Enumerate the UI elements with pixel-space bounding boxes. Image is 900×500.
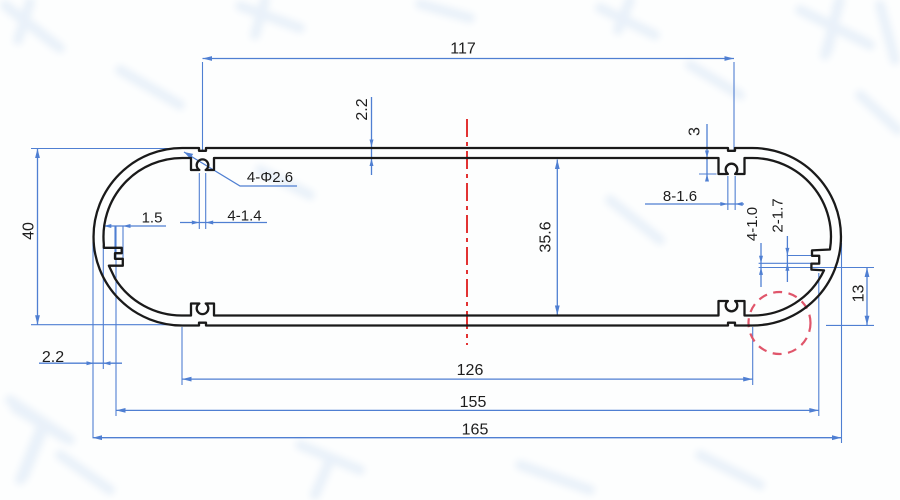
svg-text:126: 126 [457, 362, 484, 379]
svg-text:35.6: 35.6 [538, 221, 555, 252]
svg-text:2.2: 2.2 [354, 98, 371, 120]
svg-text:4-Φ2.6: 4-Φ2.6 [247, 169, 293, 186]
svg-text:2.2: 2.2 [42, 349, 64, 366]
svg-text:40: 40 [21, 222, 38, 240]
svg-text:8-1.6: 8-1.6 [663, 188, 697, 205]
svg-text:3: 3 [686, 127, 703, 136]
svg-text:4-1.0: 4-1.0 [744, 207, 761, 241]
svg-text:165: 165 [462, 422, 489, 439]
svg-text:155: 155 [460, 394, 487, 411]
svg-text:4-1.4: 4-1.4 [227, 208, 261, 225]
svg-text:1.5: 1.5 [142, 210, 163, 227]
svg-text:117: 117 [450, 41, 476, 58]
svg-text:13: 13 [851, 285, 868, 303]
svg-text:2-1.7: 2-1.7 [769, 198, 786, 232]
